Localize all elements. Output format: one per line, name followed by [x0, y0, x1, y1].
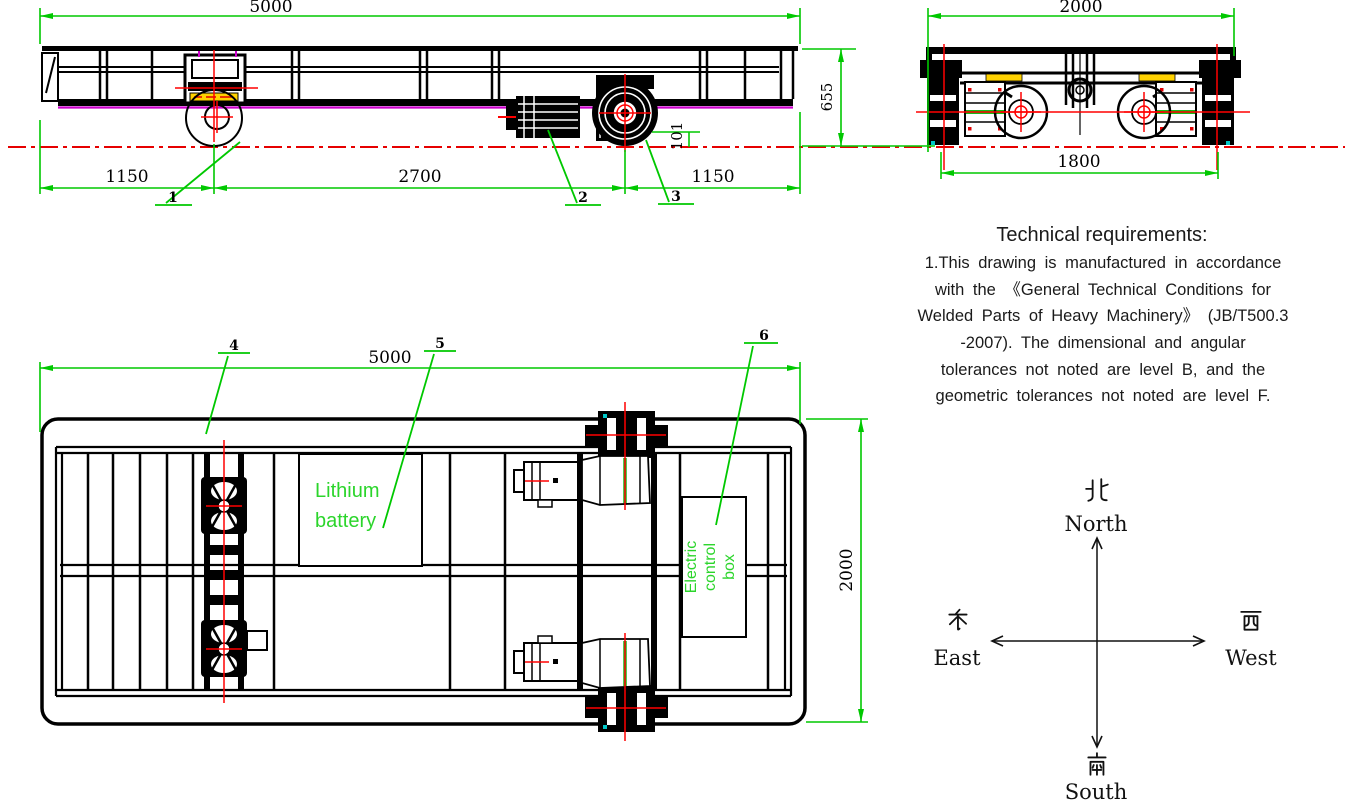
cjk-south-icon — [1088, 753, 1105, 775]
tech-req-line: Welded Parts of Heavy Machinery》 (JB/T50… — [918, 306, 1289, 325]
drawing-svg: 5000 1150 2700 1150 655 101 1 2 3 — [0, 0, 1345, 801]
front-hook — [42, 53, 58, 101]
compass-east-label: East — [933, 646, 981, 670]
battery-label-1: Lithium — [315, 480, 379, 502]
end-deck — [926, 47, 1236, 54]
callout-4: 4 — [229, 338, 239, 354]
svg-text:box: box — [721, 554, 738, 580]
cjk-east-icon — [949, 610, 966, 630]
tech-req-line: tolerances not noted are level B, and th… — [941, 361, 1265, 379]
svg-text:Electric: Electric — [683, 541, 700, 593]
plan-crossmembers — [88, 453, 768, 690]
dim-plan-length: 5000 — [368, 348, 411, 368]
bottom-chord — [58, 99, 793, 106]
tech-req-heading: Technical requirements: — [996, 224, 1207, 246]
drive-wheel-side — [592, 74, 658, 152]
tech-req-line: -2007). The dimensional and angular — [960, 334, 1246, 352]
dim-side-right: 1150 — [691, 167, 734, 187]
svg-text:control: control — [702, 543, 719, 591]
motor-label — [986, 74, 1022, 81]
technical-requirements: Technical requirements: 1.This drawing i… — [918, 224, 1289, 405]
side-view: 5000 1150 2700 1150 655 101 1 2 3 — [40, 0, 935, 206]
tech-req-line: with the 《General Technical Conditions f… — [934, 280, 1272, 299]
compass-north-label: North — [1064, 512, 1127, 536]
dim-side-length: 5000 — [249, 0, 292, 17]
plan-left-wheels — [201, 440, 267, 703]
tech-req-line: geometric tolerances not noted are level… — [936, 387, 1271, 405]
dim-side-left: 1150 — [105, 167, 148, 187]
center-coupler — [1066, 54, 1094, 135]
callout-5: 5 — [435, 336, 445, 352]
tech-req-line: 1.This drawing is manufactured in accord… — [925, 254, 1282, 272]
deck-top — [42, 46, 798, 51]
plan-view: Lithium battery Electric control box — [40, 328, 868, 741]
callout-1: 1 — [168, 190, 178, 206]
motor-label — [1139, 74, 1175, 81]
dim-end-width: 2000 — [1059, 0, 1102, 17]
dim-plan-width: 2000 — [837, 548, 857, 591]
cjk-west-icon — [1241, 612, 1260, 630]
callout-2: 2 — [578, 190, 588, 206]
dim-side-height: 655 — [818, 83, 836, 112]
dim-end-gauge: 1800 — [1057, 152, 1100, 172]
compass: North South East West — [933, 479, 1277, 801]
callout-6: 6 — [759, 328, 769, 344]
guide-wheel-bracket — [185, 51, 245, 103]
callout-3: 3 — [671, 189, 681, 205]
end-view: 2000 1800 — [916, 0, 1250, 179]
cjk-north-icon — [1086, 479, 1108, 501]
compass-south-label: South — [1065, 780, 1128, 801]
compass-west-label: West — [1225, 646, 1277, 670]
dim-wheel-drop: 101 — [668, 122, 686, 151]
battery-label-2: battery — [315, 510, 376, 532]
engineering-drawing-canvas: 5000 1150 2700 1150 655 101 1 2 3 — [0, 0, 1345, 801]
dim-side-wheelbase: 2700 — [398, 167, 441, 187]
